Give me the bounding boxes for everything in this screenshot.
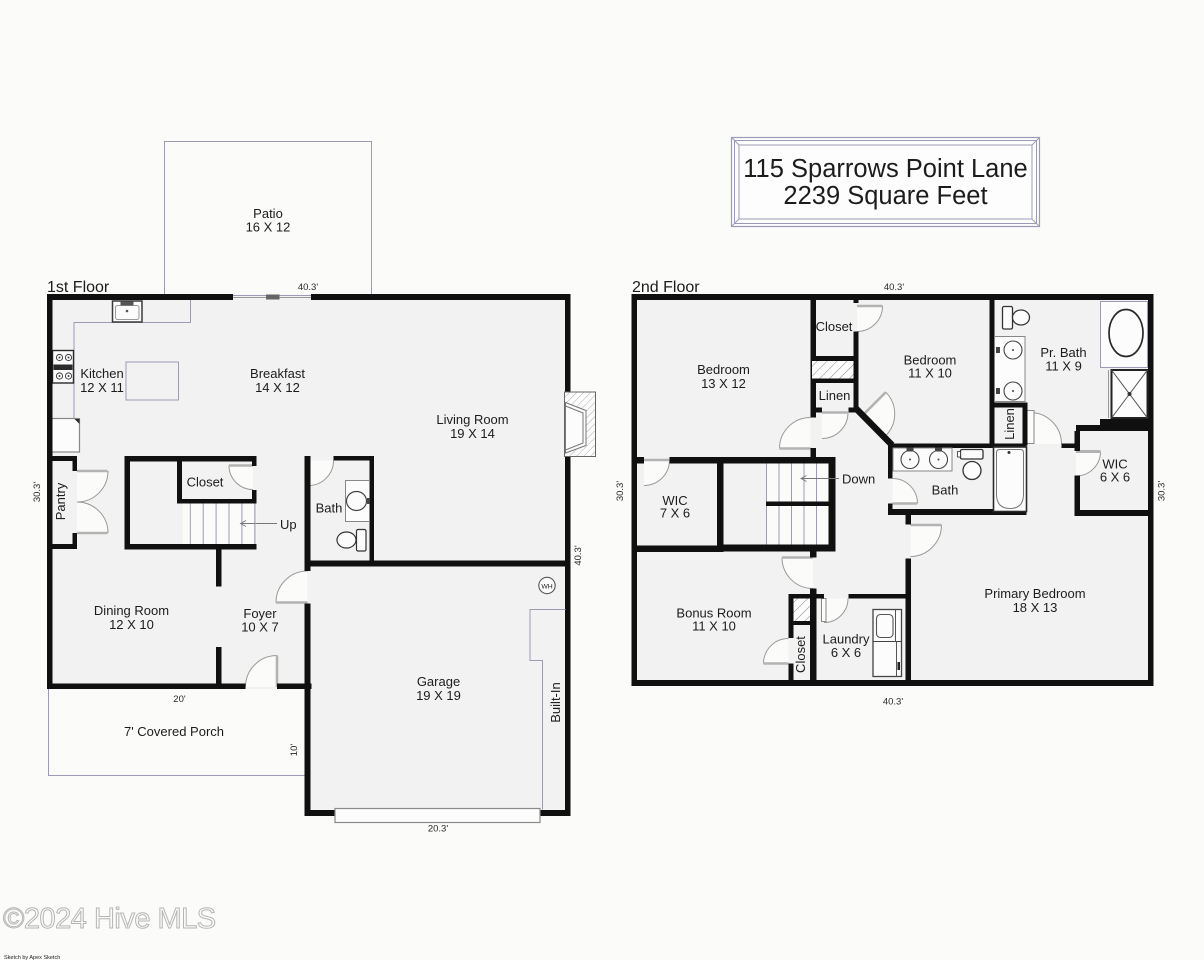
svg-text:6 X 6: 6 X 6 xyxy=(831,645,861,660)
svg-text:Closet: Closet xyxy=(187,475,224,490)
svg-text:20': 20' xyxy=(173,694,186,705)
svg-text:40.3': 40.3' xyxy=(298,282,318,293)
svg-text:Linen: Linen xyxy=(1002,408,1017,440)
svg-text:Kitchen: Kitchen xyxy=(80,366,123,381)
svg-text:WH: WH xyxy=(541,584,552,591)
svg-text:©2024 Hive MLS: ©2024 Hive MLS xyxy=(3,903,216,935)
svg-text:Sketch by Apex Sketch: Sketch by Apex Sketch xyxy=(4,955,60,960)
svg-text:1st Floor: 1st Floor xyxy=(47,279,110,296)
svg-text:11 X 9: 11 X 9 xyxy=(1045,359,1082,374)
svg-text:Built-In: Built-In xyxy=(548,682,563,722)
svg-text:2nd Floor: 2nd Floor xyxy=(632,279,700,296)
svg-text:2239 Square Feet: 2239 Square Feet xyxy=(783,182,987,210)
svg-text:6 X 6: 6 X 6 xyxy=(1100,470,1130,485)
svg-text:Closet: Closet xyxy=(793,636,808,673)
svg-text:18 X 13: 18 X 13 xyxy=(1013,600,1058,615)
svg-text:Linen: Linen xyxy=(819,388,851,403)
svg-text:11 X 10: 11 X 10 xyxy=(692,619,736,634)
svg-text:Living Room: Living Room xyxy=(436,412,508,427)
svg-text:12 X 10: 12 X 10 xyxy=(109,617,154,632)
svg-text:13 X 12: 13 X 12 xyxy=(701,376,746,391)
svg-text:7 X 6: 7 X 6 xyxy=(660,506,690,521)
svg-text:16 X 12: 16 X 12 xyxy=(246,220,291,235)
svg-text:10': 10' xyxy=(289,744,300,757)
svg-text:Breakfast: Breakfast xyxy=(250,366,305,381)
svg-text:30.3': 30.3' xyxy=(615,481,626,501)
svg-text:115 Sparrows Point Lane: 115 Sparrows Point Lane xyxy=(743,155,1027,183)
svg-text:Pantry: Pantry xyxy=(53,482,68,520)
svg-text:Dining Room: Dining Room xyxy=(94,603,169,618)
svg-text:Down: Down xyxy=(842,472,875,487)
svg-text:7' Covered Porch: 7' Covered Porch xyxy=(124,724,224,739)
svg-text:12 X 11: 12 X 11 xyxy=(80,380,124,395)
svg-text:30.3': 30.3' xyxy=(32,482,43,502)
svg-text:40.3': 40.3' xyxy=(883,697,903,708)
svg-text:Up: Up xyxy=(280,517,297,532)
svg-text:11 X 10: 11 X 10 xyxy=(908,366,952,381)
svg-text:40.3': 40.3' xyxy=(573,545,584,565)
svg-text:Closet: Closet xyxy=(816,319,853,334)
svg-text:10 X 7: 10 X 7 xyxy=(241,620,279,635)
svg-text:20.3': 20.3' xyxy=(428,824,448,835)
svg-text:19 X 14: 19 X 14 xyxy=(450,426,495,441)
svg-text:14 X 12: 14 X 12 xyxy=(255,380,300,395)
svg-text:40.3': 40.3' xyxy=(884,282,904,293)
svg-text:30.3': 30.3' xyxy=(1157,481,1168,501)
svg-text:Garage: Garage xyxy=(417,674,460,689)
svg-text:Bedroom: Bedroom xyxy=(697,362,750,377)
svg-text:Bath: Bath xyxy=(316,501,343,516)
svg-text:Bath: Bath xyxy=(932,483,959,498)
svg-text:19 X 19: 19 X 19 xyxy=(416,688,461,703)
svg-text:Primary Bedroom: Primary Bedroom xyxy=(984,586,1085,601)
